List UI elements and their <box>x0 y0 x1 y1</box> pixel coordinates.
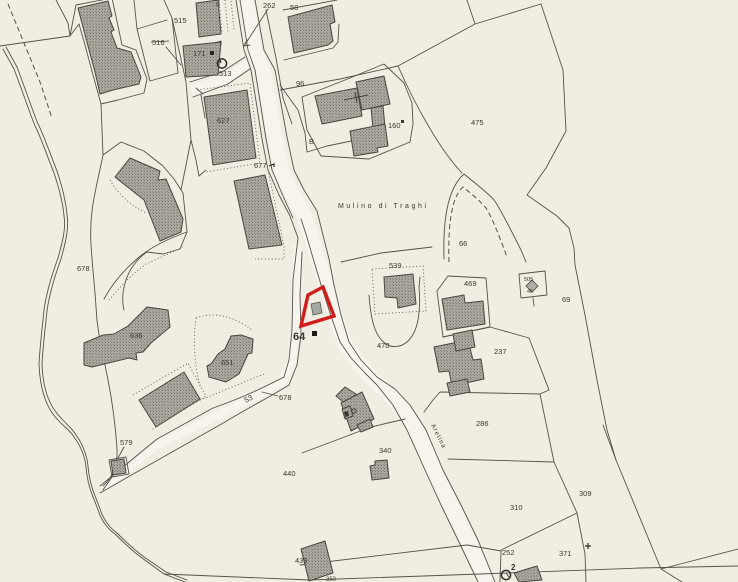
svg-text:469: 469 <box>464 279 477 288</box>
svg-text:677: 677 <box>254 161 267 170</box>
svg-text:2: 2 <box>511 563 516 572</box>
svg-text:539: 539 <box>389 261 402 270</box>
svg-text:160: 160 <box>388 121 401 130</box>
svg-text:340: 340 <box>379 446 392 455</box>
svg-text:513: 513 <box>219 69 232 78</box>
svg-text:350: 350 <box>326 577 337 582</box>
svg-text:46: 46 <box>527 289 533 295</box>
svg-text:439: 439 <box>295 556 308 565</box>
svg-text:371: 371 <box>559 549 572 558</box>
svg-text:171: 171 <box>193 49 206 58</box>
svg-text:237: 237 <box>494 347 507 356</box>
svg-text:310: 310 <box>510 503 523 512</box>
svg-text:636: 636 <box>130 331 143 340</box>
svg-text:96: 96 <box>296 79 304 88</box>
svg-text:651: 651 <box>221 358 234 367</box>
svg-text:475: 475 <box>471 118 484 127</box>
svg-text:678: 678 <box>77 264 90 273</box>
svg-text:66: 66 <box>459 239 467 248</box>
svg-text:69: 69 <box>562 295 570 304</box>
svg-text:64: 64 <box>293 331 306 343</box>
svg-text:252: 252 <box>502 548 515 557</box>
svg-text:309: 309 <box>579 489 592 498</box>
svg-text:B: B <box>309 137 314 146</box>
svg-text:286: 286 <box>476 419 489 428</box>
svg-text:470: 470 <box>377 341 390 350</box>
svg-text:440: 440 <box>283 469 296 478</box>
svg-text:678: 678 <box>279 393 292 402</box>
svg-text:262: 262 <box>263 1 276 10</box>
svg-text:58: 58 <box>290 3 298 12</box>
svg-text:C: C <box>216 2 221 8</box>
svg-text:505: 505 <box>524 277 533 283</box>
svg-text:627: 627 <box>217 116 230 125</box>
svg-text:579: 579 <box>120 438 133 447</box>
svg-text:516: 516 <box>152 38 165 47</box>
svg-text:515: 515 <box>174 16 187 25</box>
